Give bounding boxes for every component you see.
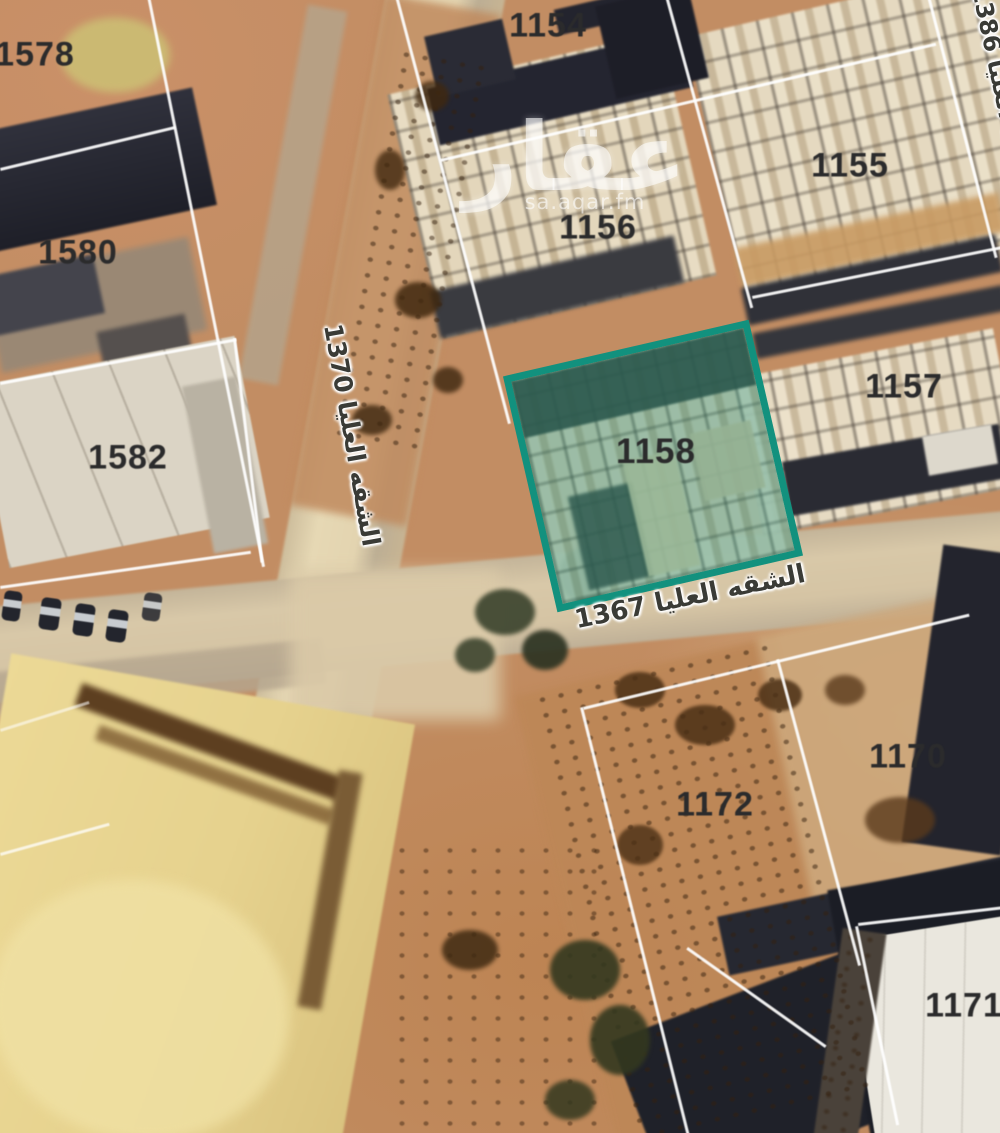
plot-label-1170: 1170 <box>869 738 947 777</box>
car <box>141 592 163 622</box>
vegetation <box>375 150 405 190</box>
vegetation <box>758 679 802 711</box>
plot-label-1580: 1580 <box>38 234 118 273</box>
plot-label-1171: 1171 <box>925 987 1000 1026</box>
vegetation <box>522 630 568 670</box>
vegetation <box>675 705 735 745</box>
plot-label-1578: 1578 <box>0 36 75 75</box>
plot-label-1155: 1155 <box>811 147 889 186</box>
vegetation <box>395 282 441 318</box>
watermark-site-text: sa.aqar.fm <box>525 190 646 214</box>
plot-label-1158: 1158 <box>616 432 696 472</box>
plot-label-1156: 1156 <box>559 209 637 248</box>
vegetation <box>442 930 498 970</box>
plot-label-1172: 1172 <box>676 786 754 825</box>
vegetation <box>865 797 935 843</box>
vegetation <box>825 675 865 705</box>
vegetation <box>590 1005 650 1075</box>
vegetation <box>617 825 663 865</box>
satellite-map[interactable]: 1578 1580 1582 1154 1155 1156 1157 1158 … <box>0 0 1000 1133</box>
vegetation <box>433 367 463 393</box>
plot-label-1154: 1154 <box>509 7 587 46</box>
plot-label-1157: 1157 <box>865 368 943 407</box>
vegetation <box>545 1080 595 1120</box>
vegetation <box>550 940 620 1000</box>
plot-label-1582: 1582 <box>88 439 168 478</box>
vegetation <box>455 638 495 672</box>
vegetation <box>475 589 535 635</box>
